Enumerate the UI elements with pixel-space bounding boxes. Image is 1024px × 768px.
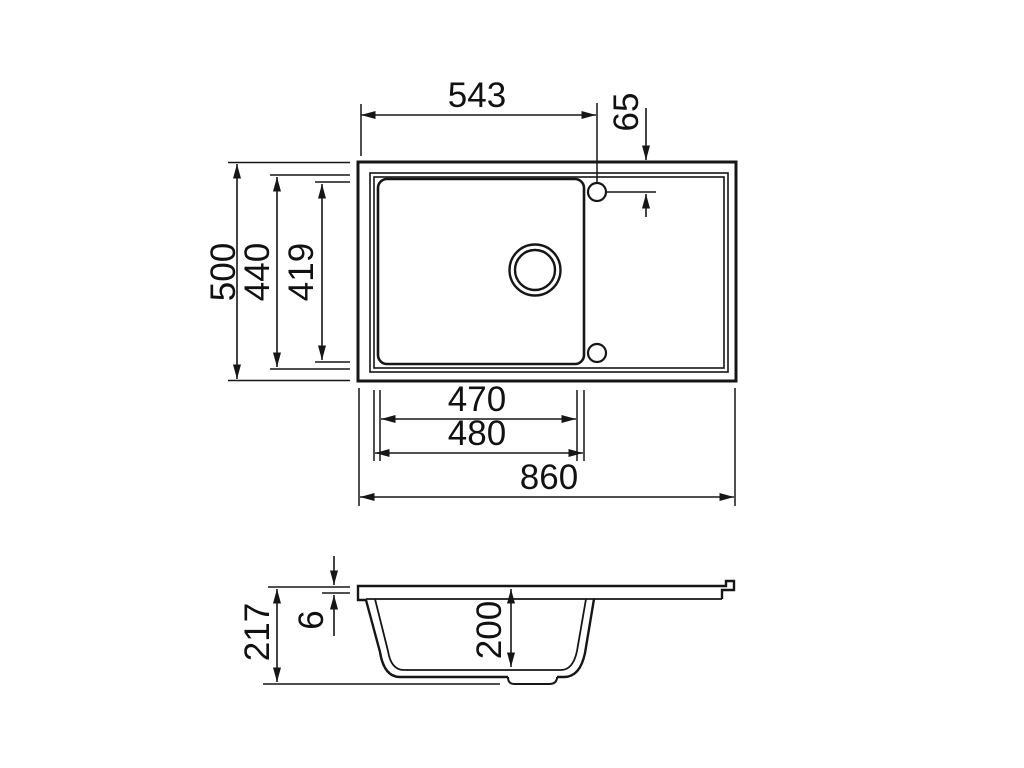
dim-label-taphole-top: 65 — [607, 93, 646, 132]
drain-outer-icon — [510, 245, 561, 296]
side-top-surface-outline — [358, 581, 734, 600]
dim-label-overall-height: 217 — [238, 603, 277, 661]
side-drain-stub — [508, 677, 557, 684]
dim-label-rim-thickness: 6 — [292, 610, 331, 629]
rim-line-inner — [374, 177, 724, 368]
taphole-bottom-icon — [588, 344, 606, 362]
rim-line-outer — [370, 173, 728, 372]
side-bowl-left-wall-inner — [375, 599, 404, 670]
sink-outer-outline — [358, 162, 736, 381]
dim-label-taphole-left: 543 — [448, 76, 506, 115]
side-view — [358, 581, 734, 684]
dim-label-rim-depth: 440 — [238, 243, 277, 301]
dim-label-bowl-depth: 200 — [470, 601, 509, 659]
sink-dimension-drawing: 543 65 500 440 419 470 480 — [0, 0, 1024, 768]
bowl-outline — [378, 179, 584, 364]
drawing-canvas: 543 65 500 440 419 470 480 — [0, 0, 1024, 768]
dim-label-overall-width: 860 — [520, 458, 578, 497]
top-view-dimensions: 543 65 500 440 419 470 480 — [204, 76, 735, 506]
dim-label-bowl-front-back: 419 — [282, 243, 321, 301]
side-bowl-right-wall-outer — [557, 599, 594, 677]
dim-label-bowl-width-outer: 480 — [448, 414, 506, 453]
top-view — [358, 162, 736, 381]
taphole-top-icon — [588, 183, 606, 201]
side-view-dimensions: 217 6 200 — [238, 556, 511, 684]
drain-inner-icon — [515, 250, 555, 290]
